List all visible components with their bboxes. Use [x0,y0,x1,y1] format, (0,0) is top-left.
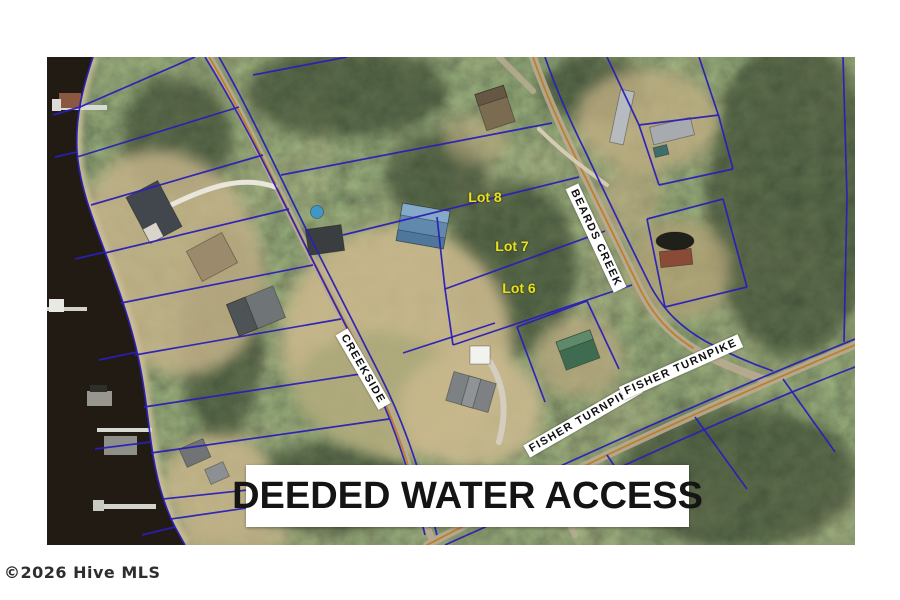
lot-7-label: Lot 7 [495,238,528,254]
lot-6-label: Lot 6 [502,280,535,296]
banner-text: DEEDED WATER ACCESS [232,475,703,518]
listing-image: Lot 8 Lot 7 Lot 6 CREEKSIDE BEARDS CREEK… [0,0,900,600]
aerial-photo: Lot 8 Lot 7 Lot 6 CREEKSIDE BEARDS CREEK… [47,57,855,545]
deeded-water-access-banner: DEEDED WATER ACCESS [246,465,689,527]
mls-watermark: ©2026 Hive MLS [4,563,160,582]
lot-8-label: Lot 8 [468,189,501,205]
